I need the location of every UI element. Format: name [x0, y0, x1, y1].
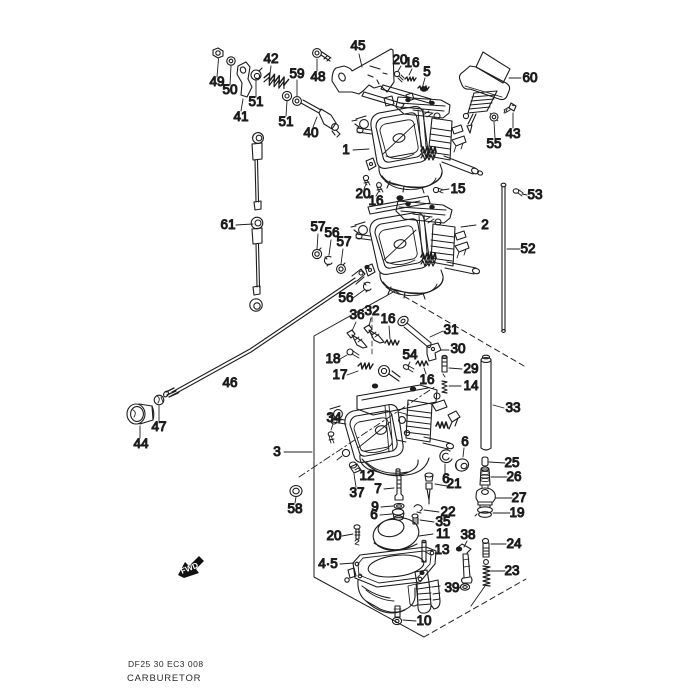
- svg-text:1: 1: [342, 142, 350, 157]
- svg-text:40: 40: [303, 125, 318, 140]
- svg-text:17: 17: [332, 367, 347, 382]
- svg-text:6: 6: [461, 434, 469, 449]
- svg-text:15: 15: [450, 181, 465, 196]
- svg-text:12: 12: [359, 468, 374, 483]
- svg-text:7: 7: [374, 481, 382, 496]
- svg-text:37: 37: [349, 485, 364, 500]
- svg-text:10: 10: [416, 613, 431, 628]
- svg-text:24: 24: [506, 536, 522, 551]
- svg-text:41: 41: [233, 109, 248, 124]
- svg-text:46: 46: [222, 375, 237, 390]
- svg-text:11: 11: [436, 526, 450, 541]
- svg-text:DF25 30 EC3 008: DF25 30 EC3 008: [128, 659, 204, 669]
- svg-text:58: 58: [287, 501, 302, 516]
- svg-text:39: 39: [444, 580, 459, 595]
- svg-text:61: 61: [220, 217, 235, 232]
- svg-text:43: 43: [505, 126, 520, 141]
- svg-text:18: 18: [325, 351, 340, 366]
- svg-text:48: 48: [310, 69, 325, 84]
- svg-text:2: 2: [481, 217, 489, 232]
- svg-text:57: 57: [310, 219, 325, 234]
- svg-text:51: 51: [278, 114, 293, 129]
- svg-text:21: 21: [446, 476, 461, 491]
- svg-text:4·5: 4·5: [318, 556, 338, 571]
- svg-text:57: 57: [336, 234, 351, 249]
- svg-text:19: 19: [509, 505, 524, 520]
- svg-text:16: 16: [404, 55, 419, 70]
- svg-text:50: 50: [222, 82, 237, 97]
- svg-text:16: 16: [380, 311, 395, 326]
- svg-text:60: 60: [522, 70, 537, 85]
- svg-text:53: 53: [527, 187, 542, 202]
- svg-text:23: 23: [504, 563, 519, 578]
- svg-text:3: 3: [273, 444, 281, 459]
- svg-text:51: 51: [248, 94, 263, 109]
- svg-text:25: 25: [504, 455, 519, 470]
- svg-text:59: 59: [289, 66, 304, 81]
- svg-text:30: 30: [450, 341, 465, 356]
- svg-text:47: 47: [151, 419, 166, 434]
- svg-text:33: 33: [505, 400, 520, 415]
- svg-text:29: 29: [463, 361, 478, 376]
- svg-text:54: 54: [402, 347, 418, 362]
- svg-text:31: 31: [443, 322, 458, 337]
- svg-text:38: 38: [460, 527, 475, 542]
- svg-text:52: 52: [520, 241, 535, 256]
- svg-text:42: 42: [263, 51, 278, 66]
- svg-text:32: 32: [364, 303, 379, 318]
- svg-text:16: 16: [419, 372, 434, 387]
- svg-text:45: 45: [350, 38, 365, 53]
- svg-text:44: 44: [133, 436, 149, 451]
- svg-text:36: 36: [349, 307, 364, 322]
- svg-text:26: 26: [506, 469, 521, 484]
- svg-text:CARBURETOR: CARBURETOR: [127, 673, 201, 684]
- svg-text:27: 27: [511, 490, 526, 505]
- svg-text:13: 13: [434, 542, 449, 557]
- svg-text:14: 14: [463, 378, 479, 393]
- svg-text:6: 6: [370, 507, 378, 522]
- svg-text:56: 56: [338, 290, 353, 305]
- svg-text:20: 20: [326, 528, 341, 543]
- svg-text:55: 55: [486, 136, 501, 151]
- svg-text:5: 5: [423, 64, 431, 79]
